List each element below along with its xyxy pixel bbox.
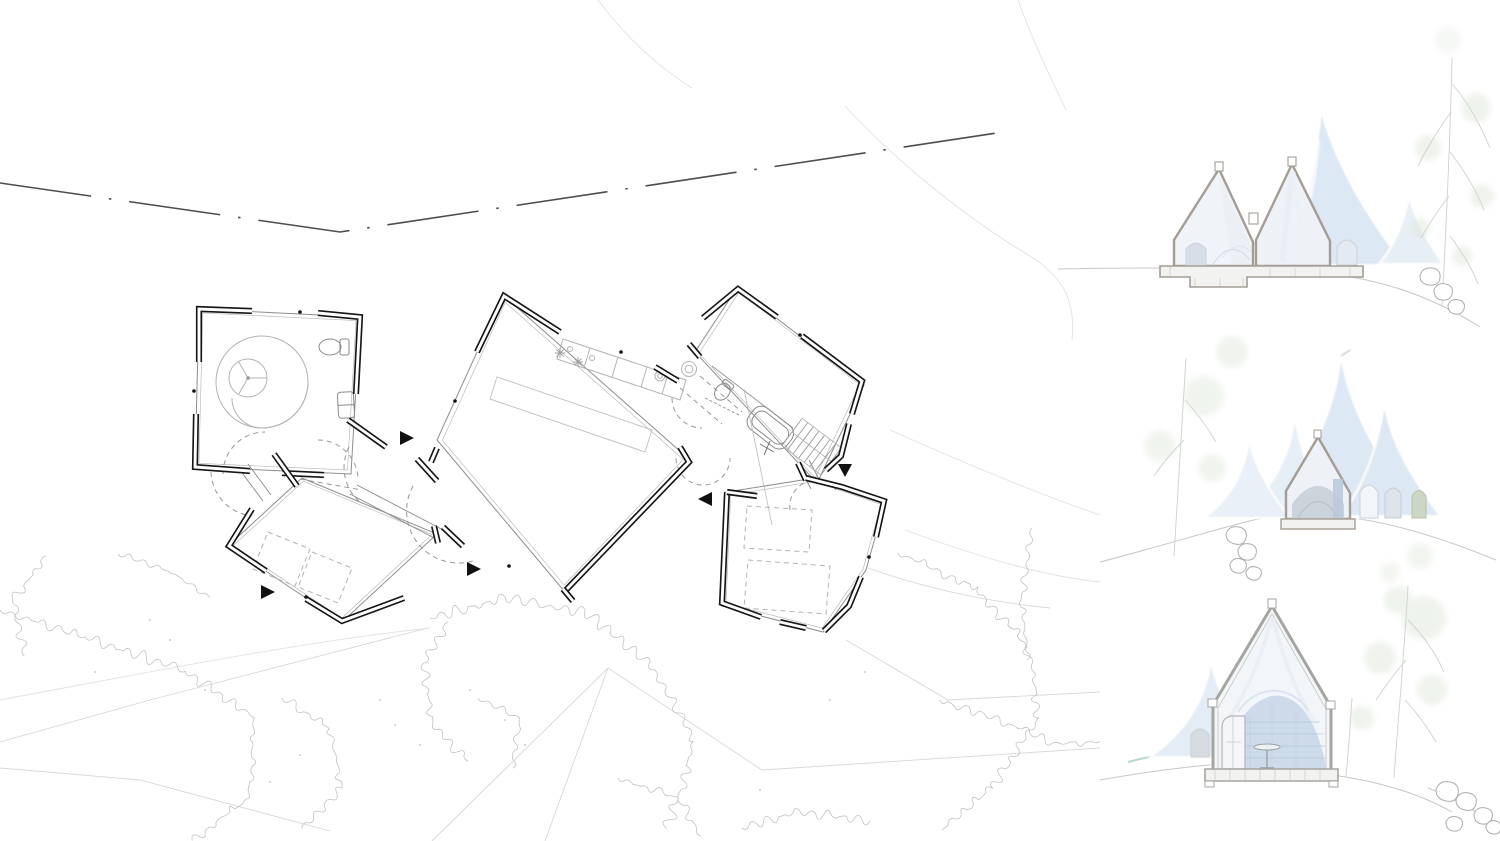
wall-core — [443, 527, 463, 546]
entry-arrow — [261, 585, 275, 599]
alcove — [1222, 716, 1245, 769]
contour-line — [845, 106, 1073, 340]
valley-box — [1249, 213, 1258, 224]
rock — [1246, 567, 1261, 581]
stair-cross-mark — [760, 441, 774, 455]
room-inner-outline — [726, 482, 881, 629]
tree-foliage — [1350, 586, 1447, 730]
tree-canopy-outline — [282, 698, 342, 829]
tree-canopy-outline — [898, 553, 1040, 830]
corner-sink-drain — [685, 365, 693, 373]
bathtub — [743, 402, 797, 453]
dashed-wall-line — [680, 388, 722, 424]
tree-canopy-outline — [478, 698, 520, 768]
corridor-line — [240, 470, 263, 501]
vestibule-arc — [407, 486, 476, 563]
apex-vent — [1314, 430, 1321, 438]
side-arch — [1360, 485, 1378, 518]
link-corridors — [240, 460, 821, 541]
tree-canopy-outline — [430, 594, 694, 828]
toilet — [319, 339, 349, 355]
trees-right — [1346, 586, 1447, 778]
tree-canopy-outline — [742, 808, 870, 829]
kitchen-counter-dividers — [584, 348, 668, 394]
contour-line — [905, 530, 1100, 582]
tree-canopy-outline — [0, 610, 256, 841]
dashed-wall-line — [700, 376, 742, 412]
rock — [1420, 268, 1440, 285]
wall — [195, 414, 250, 471]
eave-cap — [1208, 699, 1217, 707]
rock — [1434, 284, 1452, 301]
spiral-stove-center — [246, 376, 249, 379]
rock — [1238, 544, 1256, 561]
room-outlines — [195, 288, 885, 632]
entry-arrow — [467, 562, 481, 576]
wall-core — [477, 296, 560, 352]
eave-cap — [1326, 701, 1335, 709]
site-path — [846, 640, 1100, 700]
interior-arch-door — [1186, 243, 1206, 266]
tree-canopy-outline — [618, 778, 701, 836]
rocks — [1226, 527, 1261, 581]
contour-line — [890, 430, 1100, 515]
rock — [1446, 817, 1462, 832]
road-centerline — [0, 131, 1010, 232]
road-dashed-line — [0, 131, 1010, 232]
west-cabin-outline — [228, 478, 437, 622]
furniture-dashed-rect — [744, 560, 830, 614]
tree-canopy-outline — [940, 700, 1100, 746]
kitchen-knob — [590, 356, 595, 361]
section-middle — [1100, 336, 1496, 582]
site-path — [608, 668, 1100, 770]
corridor-line — [357, 485, 447, 532]
side-arch — [1385, 488, 1401, 518]
cone-arch-door — [1191, 729, 1209, 757]
kitchen-counter — [557, 339, 686, 400]
tree-canopy-outline — [118, 554, 210, 598]
cone-tip — [1341, 350, 1350, 356]
rock — [1436, 782, 1458, 802]
mullion-dots — [192, 310, 871, 599]
slab-foot — [1329, 781, 1338, 787]
circulation-dashes — [211, 376, 836, 563]
contour-line — [0, 628, 430, 700]
site-path — [0, 768, 330, 831]
ground-speckles — [94, 619, 866, 791]
floor-plan — [192, 288, 885, 632]
contour-line — [1018, 0, 1066, 110]
green-arch-door — [1412, 491, 1426, 519]
site-path — [0, 629, 424, 742]
kitchen-knob — [568, 347, 573, 352]
tree-canopy-outline — [421, 622, 468, 761]
spiral-stove-arm — [232, 382, 308, 428]
site-path — [545, 668, 608, 841]
spiral-room-outline — [195, 309, 360, 474]
side-arch — [1337, 240, 1357, 265]
rocks — [1420, 268, 1464, 314]
rocks — [1436, 782, 1500, 834]
floor-slab — [1281, 519, 1355, 529]
architectural-drawing — [0, 0, 1500, 841]
table-top — [1254, 744, 1280, 750]
section-bottom — [1100, 586, 1500, 834]
rock — [1230, 559, 1246, 574]
corridor-line — [248, 464, 271, 495]
entry-arrow — [698, 492, 712, 506]
site-path — [432, 668, 608, 841]
entry-arrow — [400, 431, 414, 445]
site-paths — [0, 568, 1100, 841]
long-table — [490, 377, 652, 452]
tree-foliage — [1144, 336, 1248, 482]
wall-core — [274, 454, 297, 486]
entry-arrow — [838, 464, 852, 477]
cabinet — [337, 392, 354, 419]
interior-pilaster — [1333, 479, 1343, 519]
rock — [1486, 821, 1500, 835]
furniture-dashed-rect — [744, 506, 812, 552]
apex-vent — [1215, 162, 1223, 171]
wall — [703, 289, 777, 318]
apex-vent — [1288, 157, 1296, 166]
tree-canopy-outline — [12, 556, 46, 656]
corridor-line — [350, 494, 440, 541]
corner-sink — [682, 362, 697, 377]
trees-left — [1144, 336, 1248, 556]
section-top — [1058, 28, 1494, 327]
site-path — [868, 568, 1050, 608]
stair-cut-line — [744, 389, 772, 525]
plan-walls — [195, 289, 884, 631]
wall-core — [195, 414, 250, 471]
wall-core — [806, 478, 884, 537]
dashed-furniture — [253, 506, 830, 614]
trees-right-faint — [1380, 543, 1433, 582]
rock — [1448, 300, 1464, 315]
apex-cap — [1268, 599, 1276, 608]
rock — [1456, 793, 1476, 811]
tree-canopy-outline — [1019, 528, 1032, 660]
floor-slab — [1205, 769, 1338, 781]
contour-line — [598, 0, 692, 88]
room-inner-outline — [199, 313, 356, 470]
slab-foot — [1205, 781, 1214, 787]
floor-slab — [1160, 266, 1363, 287]
rock — [1226, 527, 1246, 545]
dashed-wall-line — [300, 479, 362, 490]
cut-building — [1205, 599, 1338, 787]
site-contours — [0, 0, 1100, 700]
drawing-board — [0, 0, 1500, 841]
